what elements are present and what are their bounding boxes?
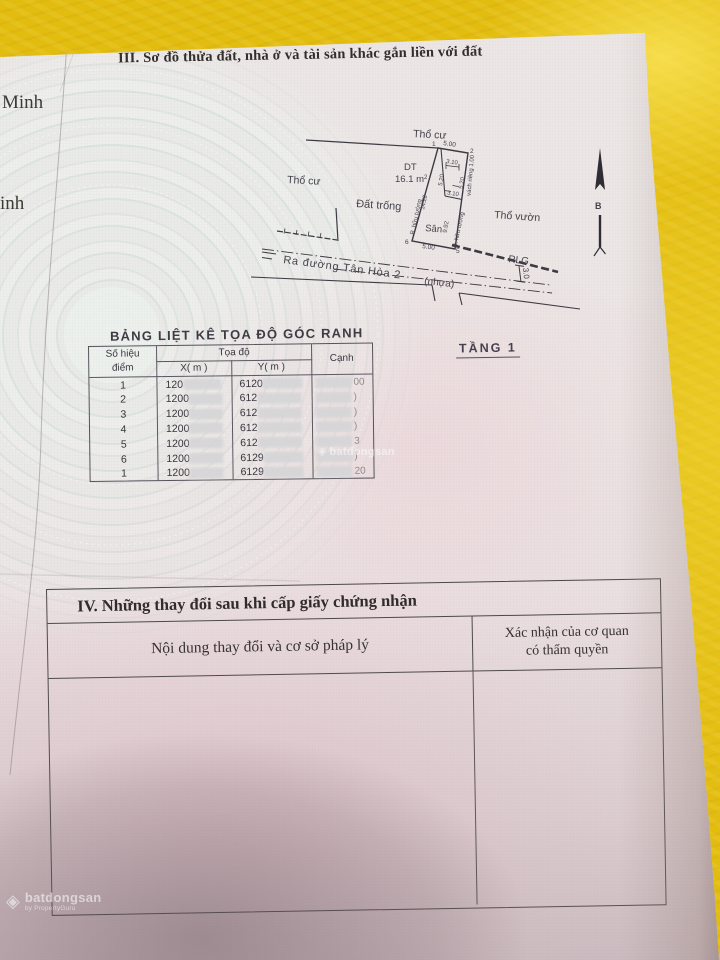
label-wall-private: vách riêng 1.00 [467,154,477,196]
label-wall-right: R. hữu tường [453,212,466,249]
certificate-page: B Thổ cư Thổ cư Đất trống Thổ vườn DT 16… [0,0,720,960]
dim-side-left: 14.22 [420,194,429,211]
point-6: 6 [405,239,409,246]
cell-x: 1200 [157,452,232,465]
redaction [189,393,223,404]
cell-edge: ) [312,451,373,463]
rlg-line [452,245,558,272]
cell-y: 612 [232,406,312,419]
label-rlg: RLG [508,254,530,267]
redaction [190,452,224,463]
cell-point: 5 [90,438,157,451]
dim-house-w-bottom: 3.10 [447,191,460,199]
label-san: Sân [425,223,443,235]
house-walls [441,149,462,200]
cell-edge: ) [312,421,373,433]
redaction [189,423,223,434]
dim-bottom: 5.00 [422,243,436,252]
redaction [316,392,352,403]
label-tho-cu-top: Thổ cư [413,128,447,142]
header-point-1: Số hiệu [89,348,156,360]
header-point-2: điểm [89,362,156,374]
label-road-surface: (nhựa) [424,276,455,290]
redaction [257,407,301,419]
plot-outline [412,148,468,249]
cell-x: 1200 [157,407,232,420]
header-x: X( m ) [156,362,231,374]
section3-title: III. Sơ đồ thửa đất, nhà ở và tài sản kh… [118,44,483,68]
label-tho-vuon: Thổ vườn [494,209,541,224]
redaction [263,377,303,388]
parcel-boundaries [277,140,468,249]
label-road-name: Ra đường Tân Hòa 2 [283,254,402,281]
table-line [473,672,478,905]
label-dat-trong: Đất trống [356,198,402,213]
north-arrow-icon: B [594,148,606,256]
header-coords: Tọa độ [156,346,312,359]
label-dt-area: 16.1 m2 [395,174,428,185]
photo-background: B Thổ cư Thổ cư Đất trống Thổ vườn DT 16… [0,0,720,960]
margin-text-top: Minh [2,92,43,114]
cell-point: 4 [90,423,157,436]
redaction [316,421,352,432]
label-wall-left: R. hữu tường [410,199,423,236]
redaction [189,408,223,419]
redaction [264,451,304,462]
diagram-dimensions: 1 2 5 6 5.00 5.00 3.10 3.10 5.20 5.20 14… [405,140,476,255]
cell-x: 1200 [157,437,232,450]
table-row: 1 1200 6129 20 [90,463,373,481]
north-label: B [595,201,602,211]
cell-point: 6 [90,453,157,466]
cell-point: 1 [89,379,156,392]
redaction [316,466,352,477]
point-5: 5 [456,248,460,255]
header-confirm-column: Xác nhận của cơ quan có thẩm quyền [472,613,662,670]
cell-y: 612 [232,421,312,434]
cell-y: 6129 [232,451,312,464]
cell-edge: 3 [312,436,373,448]
cell-y: 6129 [232,466,312,479]
coord-table-title: BẢNG LIỆT KÊ TỌA ĐỘ GÓC RANH [110,325,364,344]
header-content-column: Nội dung thay đổi và cơ sở pháp lý [48,617,473,678]
cell-x: 1200 [157,467,232,480]
coord-table: Số hiệu điểm Tọa độ X( m ) Y( m ) Cạnh 1… [88,343,375,482]
label-tho-cu-left: Thổ cư [287,174,321,188]
redaction [258,437,302,449]
label-rlg-width: 3.0 [521,267,531,279]
label-dt: DT [404,162,417,173]
redaction [189,438,223,449]
diagram-labels: Thổ cư Thổ cư Đất trống Thổ vườn DT 16.1… [283,128,541,290]
redaction [316,406,352,417]
cell-point: 3 [90,408,157,421]
header-edge: Cạnh [311,353,372,365]
dim-side-right: 9.92 [443,220,451,233]
cell-edge: 00 [311,377,372,389]
cell-y: 612 [232,436,312,449]
dim-top: 5.00 [443,140,457,149]
redaction [316,451,352,462]
floor-label: TẦNG 1 [456,340,520,358]
cell-x: 1200 [157,393,232,406]
point-1: 1 [432,141,436,148]
redaction [257,422,301,434]
rlg-tick [515,265,525,282]
cell-y: 612 [232,392,312,405]
redaction [190,467,224,478]
redaction [316,436,352,447]
dim-house-w-top: 3.10 [446,159,459,167]
margin-text-mid: inh [0,193,24,215]
redaction [264,466,304,477]
section4-empty-body [49,668,666,912]
cell-point: 1 [90,467,157,480]
redaction [183,378,221,389]
cell-y: 6120 [231,377,311,390]
redaction [315,377,351,388]
dim-house-h-left: 5.20 [438,173,446,186]
road-lines [251,245,580,309]
cell-point: 2 [90,393,157,406]
cell-x: 120 [156,378,231,391]
header-y: Y( m ) [231,361,311,373]
point-2: 2 [470,148,474,155]
section4-table: IV. Những thay đổi sau khi cấp giấy chứn… [46,578,667,916]
cell-x: 1200 [157,422,232,435]
dim-house-h-right: 5.20 [459,176,467,189]
cell-edge: ) [312,406,373,418]
cell-edge: ) [312,391,373,403]
cell-edge: 20 [312,465,373,477]
redaction [257,392,301,404]
